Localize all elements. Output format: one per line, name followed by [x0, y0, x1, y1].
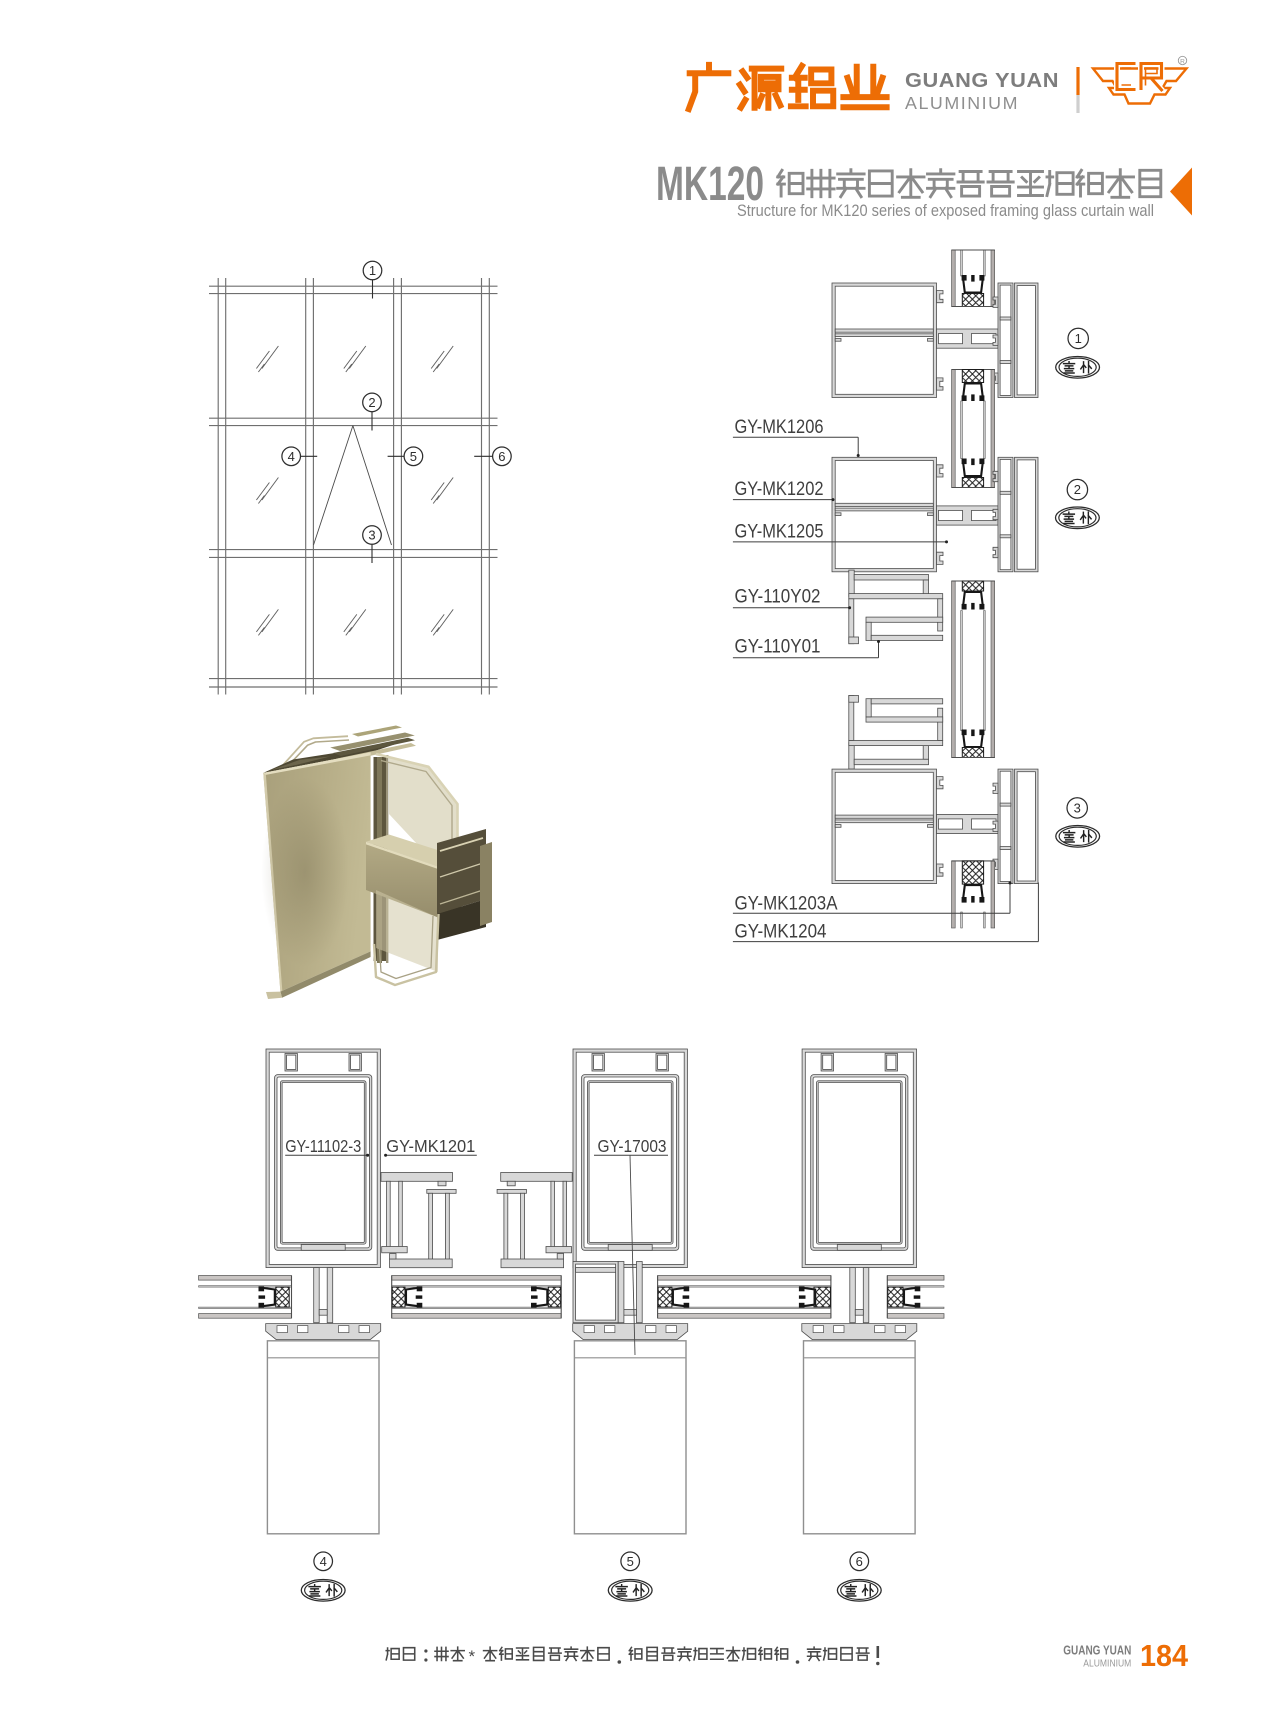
svg-text:R: R — [1180, 58, 1185, 65]
svg-text:GUANG YUAN: GUANG YUAN — [905, 69, 1059, 92]
svg-text:GY-MK1201: GY-MK1201 — [386, 1136, 475, 1156]
svg-text:Structure for MK120 series of: Structure for MK120 series of exposed fr… — [737, 202, 1154, 220]
svg-text:GY-MK1204: GY-MK1204 — [735, 922, 827, 943]
svg-text:5: 5 — [627, 1554, 634, 1569]
svg-text:GY-17003: GY-17003 — [598, 1136, 667, 1156]
svg-text:GY-MK1203A: GY-MK1203A — [735, 894, 838, 915]
svg-text:4: 4 — [320, 1554, 327, 1569]
svg-text:2: 2 — [1074, 482, 1081, 497]
svg-text:1: 1 — [1075, 331, 1082, 346]
svg-text:4: 4 — [288, 449, 295, 464]
svg-text:3: 3 — [368, 528, 375, 543]
svg-text:ALUMINIUM: ALUMINIUM — [905, 93, 1019, 113]
svg-text:GY-MK1202: GY-MK1202 — [735, 479, 824, 500]
svg-text:ALUMINIUM: ALUMINIUM — [1083, 1658, 1131, 1670]
svg-text:6: 6 — [856, 1554, 863, 1569]
svg-text:GY-110Y02: GY-110Y02 — [735, 587, 821, 608]
svg-text:*: * — [469, 1647, 476, 1666]
svg-text:GUANG YUAN: GUANG YUAN — [1063, 1643, 1131, 1658]
svg-text:5: 5 — [410, 449, 417, 464]
svg-text:GY-11102-3: GY-11102-3 — [285, 1136, 361, 1156]
svg-text:6: 6 — [498, 449, 505, 464]
svg-text:3: 3 — [1074, 801, 1081, 816]
svg-text:184: 184 — [1140, 1639, 1188, 1673]
svg-text:2: 2 — [368, 395, 375, 410]
svg-text:GY-MK1205: GY-MK1205 — [735, 522, 824, 543]
svg-text:GY-110Y01: GY-110Y01 — [735, 637, 821, 658]
svg-text:1: 1 — [369, 263, 376, 278]
svg-text:GY-MK1206: GY-MK1206 — [735, 417, 824, 438]
